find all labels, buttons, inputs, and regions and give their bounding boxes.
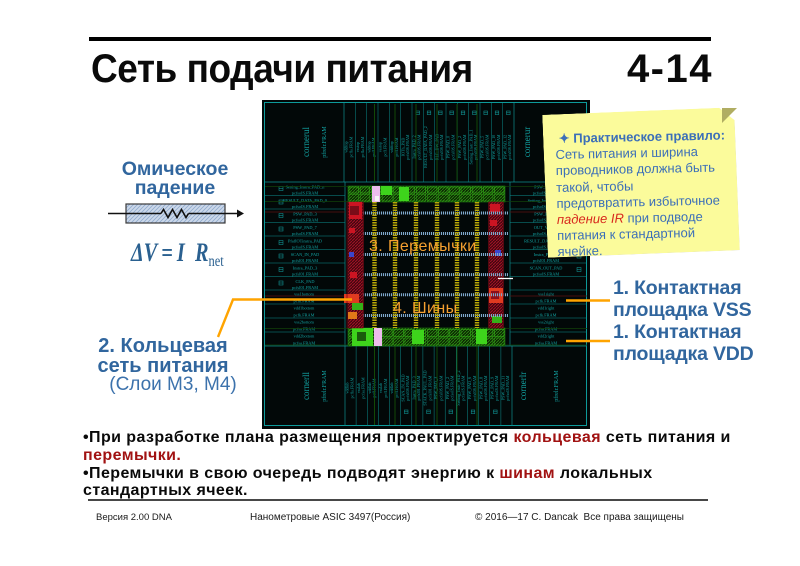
- svg-text:pcfsoIS.FRAM: pcfsoIS.FRAM: [494, 375, 499, 400]
- svg-text:PfafIOTinstra_PAD: PfafIOTinstra_PAD: [288, 238, 322, 243]
- svg-text:pcfl.FRAM: pcfl.FRAM: [394, 137, 399, 156]
- svg-text:pcfla.FRAM: pcfla.FRAM: [349, 136, 354, 157]
- svg-text:pcfk.FRAM: pcfk.FRAM: [294, 313, 315, 318]
- svg-text:pcfsI01.FRAM: pcfsI01.FRAM: [416, 375, 421, 400]
- svg-text:pcfsoIS.FRAM: pcfsoIS.FRAM: [292, 244, 319, 249]
- svg-text:cornerlr: cornerlr: [518, 372, 528, 400]
- svg-text:SCAN_IN_PAD: SCAN_IN_PAD: [291, 252, 320, 257]
- svg-text:pcfsI01.FRAM: pcfsI01.FRAM: [292, 285, 318, 290]
- svg-text:pcfsoIS.FRAM: pcfsoIS.FRAM: [292, 231, 319, 236]
- svg-text:pcfsI0S.FRAM: pcfsI0S.FRAM: [483, 375, 488, 400]
- svg-text:pcfsoIS.FRAM: pcfsoIS.FRAM: [450, 375, 455, 400]
- svg-text:vdd2bottom: vdd2bottom: [294, 334, 315, 339]
- svg-text:pcfl.FRAM: pcfl.FRAM: [383, 137, 388, 156]
- svg-text:pcfsI01.FRAM: pcfsI01.FRAM: [427, 375, 432, 400]
- svg-text:cornerll: cornerll: [301, 372, 311, 400]
- svg-text:vss2right: vss2right: [538, 320, 555, 325]
- svg-text:pfrelr.FRAM: pfrelr.FRAM: [553, 370, 560, 402]
- svg-text:pcfsa.FRAM: pcfsa.FRAM: [293, 327, 315, 332]
- svg-text:pcfsoIS.FRAM: pcfsoIS.FRAM: [461, 375, 466, 400]
- svg-text:pcfsI0S.FRAM: pcfsI0S.FRAM: [473, 134, 478, 159]
- svg-text:pcfsoIS.FRAM: pcfsoIS.FRAM: [505, 375, 510, 400]
- svg-text:pcfsI0S.FRAM: pcfsI0S.FRAM: [405, 375, 410, 400]
- svg-text:pfrelr.FRAM: pfrelr.FRAM: [321, 370, 328, 402]
- svg-text:3. Перемычки: 3. Перемычки: [369, 238, 477, 255]
- svg-text:vss2bottom: vss2bottom: [294, 320, 314, 325]
- svg-text:cornerul: cornerul: [301, 127, 311, 157]
- svg-text:pcfk.FRAM: pcfk.FRAM: [294, 299, 315, 304]
- svg-text:pcfsI0S.FRAM: pcfsI0S.FRAM: [462, 134, 467, 159]
- svg-text:pcfsoIS.FRAM: pcfsoIS.FRAM: [292, 217, 319, 222]
- svg-text:pcfsoIS.FRAM: pcfsoIS.FRAM: [292, 190, 319, 195]
- svg-text:cornerur: cornerur: [522, 127, 532, 157]
- svg-text:pcfsI0S.FRAM: pcfsI0S.FRAM: [428, 134, 433, 159]
- svg-text:pcfk.FRAM: pcfk.FRAM: [536, 313, 557, 318]
- svg-text:pcfl.FRAM: pcfl.FRAM: [371, 137, 376, 156]
- svg-text:pcfl.FRAM: pcfl.FRAM: [383, 378, 388, 397]
- svg-text:CLK_PAD: CLK_PAD: [296, 279, 315, 284]
- svg-text:pcfsa.FRAM: pcfsa.FRAM: [535, 327, 557, 332]
- svg-text:pcfsa.FRAM: pcfsa.FRAM: [361, 377, 366, 399]
- svg-text:SCAN_OUT_PAD: SCAN_OUT_PAD: [530, 265, 563, 270]
- svg-text:pcfsI01.FRAM: pcfsI01.FRAM: [292, 271, 318, 276]
- svg-text:Instra_PAD_3: Instra_PAD_3: [293, 265, 317, 270]
- svg-text:pcfsoIS.FRAM: pcfsoIS.FRAM: [292, 204, 319, 209]
- svg-text:pcfsI0S.FRAM: pcfsI0S.FRAM: [485, 134, 490, 159]
- svg-text:pcfsoIS.FRAM: pcfsoIS.FRAM: [533, 271, 560, 276]
- svg-text:pcfsI0S.FRAM: pcfsI0S.FRAM: [405, 134, 410, 159]
- svg-text:PSW_PAD_7: PSW_PAD_7: [293, 225, 317, 230]
- svg-text:pcfsI01.FRAM: pcfsI01.FRAM: [292, 258, 318, 263]
- svg-text:vdd2right: vdd2right: [538, 334, 556, 339]
- svg-text:pcfsI0S.FRAM: pcfsI0S.FRAM: [438, 375, 443, 400]
- svg-text:4. Шины: 4. Шины: [393, 300, 458, 317]
- svg-text:vdd1bottom: vdd1bottom: [294, 306, 315, 311]
- svg-text:pfrelr.FRAM: pfrelr.FRAM: [321, 126, 328, 158]
- svg-text:pcfla.FRAM: pcfla.FRAM: [360, 136, 365, 157]
- svg-text:pcfsI0S.FRAM: pcfsI0S.FRAM: [507, 134, 512, 159]
- svg-text:pcfsI0S.FRAM: pcfsI0S.FRAM: [472, 375, 477, 400]
- svg-text:pcfsI0S.FRAM: pcfsI0S.FRAM: [417, 134, 422, 159]
- svg-text:pcfk.FRAM: pcfk.FRAM: [536, 299, 557, 304]
- svg-text:pcfla.FRAM: pcfla.FRAM: [349, 377, 354, 398]
- svg-text:RESULT_DATA_PAD_0: RESULT_DATA_PAD_0: [283, 198, 327, 203]
- svg-text:pcfsI0S.FRAM: pcfsI0S.FRAM: [451, 134, 456, 159]
- svg-text:pcfsI01.FRAM: pcfsI01.FRAM: [533, 258, 559, 263]
- svg-text:pcfsI0S.FRAM: pcfsI0S.FRAM: [439, 134, 444, 159]
- svg-text:pcfsI0S.FRAM: pcfsI0S.FRAM: [496, 134, 501, 159]
- svg-text:vdd1right: vdd1right: [538, 306, 556, 311]
